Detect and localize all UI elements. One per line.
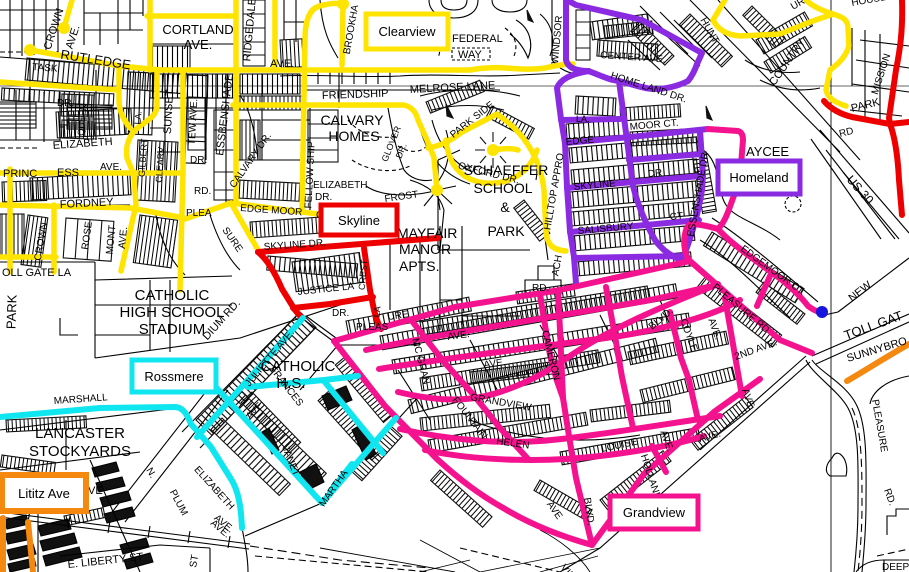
svg-text:CATHOLIC: CATHOLIC bbox=[135, 287, 210, 304]
svg-text:AVE.: AVE. bbox=[117, 226, 130, 249]
svg-text:&: & bbox=[500, 199, 510, 215]
svg-text:PARK: PARK bbox=[487, 223, 525, 239]
svg-text:HIGH SCHOOL: HIGH SCHOOL bbox=[119, 304, 224, 321]
svg-text:FRIENDSHIP: FRIENDSHIP bbox=[322, 88, 389, 102]
svg-text:MAYFAIR: MAYFAIR bbox=[397, 225, 457, 241]
svg-text:DR: DR bbox=[647, 168, 662, 180]
svg-text:Lititz Ave: Lititz Ave bbox=[18, 486, 70, 501]
svg-text:SCHOOL: SCHOOL bbox=[473, 180, 532, 196]
svg-text:CORTLAND: CORTLAND bbox=[162, 22, 233, 37]
svg-text:LA: LA bbox=[372, 306, 383, 318]
svg-text:DR.: DR. bbox=[57, 98, 74, 109]
svg-text:FEDERAL: FEDERAL bbox=[452, 33, 503, 45]
svg-text:WAY: WAY bbox=[458, 49, 482, 61]
svg-text:CT: CT bbox=[669, 211, 683, 223]
svg-text:AVE.: AVE. bbox=[100, 162, 122, 173]
svg-text:OLL GATE LA: OLL GATE LA bbox=[2, 267, 72, 279]
svg-text:RD.: RD. bbox=[532, 283, 549, 294]
svg-text:SCHAEFFER: SCHAEFFER bbox=[464, 162, 549, 178]
svg-text:AVE.: AVE. bbox=[184, 37, 213, 52]
svg-text:MANOR: MANOR bbox=[399, 241, 451, 257]
svg-text:AVE.: AVE. bbox=[270, 58, 294, 70]
svg-text:HOMES: HOMES bbox=[328, 128, 379, 144]
svg-text:Skyline: Skyline bbox=[338, 213, 380, 228]
svg-text:DEEP: DEEP bbox=[882, 562, 909, 572]
svg-text:SUNSET: SUNSET bbox=[162, 89, 176, 134]
svg-text:LA.: LA. bbox=[132, 111, 143, 125]
svg-text:PLEA: PLEA bbox=[186, 208, 212, 219]
svg-text:DR.: DR. bbox=[190, 155, 207, 166]
svg-text:CALVARY: CALVARY bbox=[320, 112, 384, 128]
svg-text:Grandview: Grandview bbox=[623, 505, 686, 520]
svg-text:Rossmere: Rossmere bbox=[144, 369, 203, 384]
svg-text:PLEAS: PLEAS bbox=[356, 322, 389, 333]
svg-text:VE: VE bbox=[88, 485, 103, 497]
svg-text:DR.: DR. bbox=[332, 308, 349, 319]
svg-text:DR.: DR. bbox=[315, 192, 332, 203]
svg-text:APTS.: APTS. bbox=[399, 258, 439, 274]
svg-text:AYCEE: AYCEE bbox=[746, 144, 789, 159]
svg-text:ELIZABETH: ELIZABETH bbox=[313, 180, 367, 191]
svg-text:LA.: LA. bbox=[576, 114, 590, 124]
svg-text:ST: ST bbox=[188, 554, 201, 568]
svg-text:PARK: PARK bbox=[3, 294, 19, 329]
svg-text:STADIUM: STADIUM bbox=[139, 321, 205, 338]
svg-text:Clearview: Clearview bbox=[378, 24, 436, 39]
svg-text:ESS: ESS bbox=[57, 167, 79, 179]
svg-text:PRINC: PRINC bbox=[3, 168, 37, 180]
svg-text:Homeland: Homeland bbox=[729, 170, 788, 185]
svg-text:LANCASTER: LANCASTER bbox=[35, 425, 125, 442]
svg-text:RD.: RD. bbox=[194, 186, 211, 197]
svg-text:TASK: TASK bbox=[32, 62, 58, 75]
svg-text:STOCKYARDS: STOCKYARDS bbox=[29, 443, 131, 460]
